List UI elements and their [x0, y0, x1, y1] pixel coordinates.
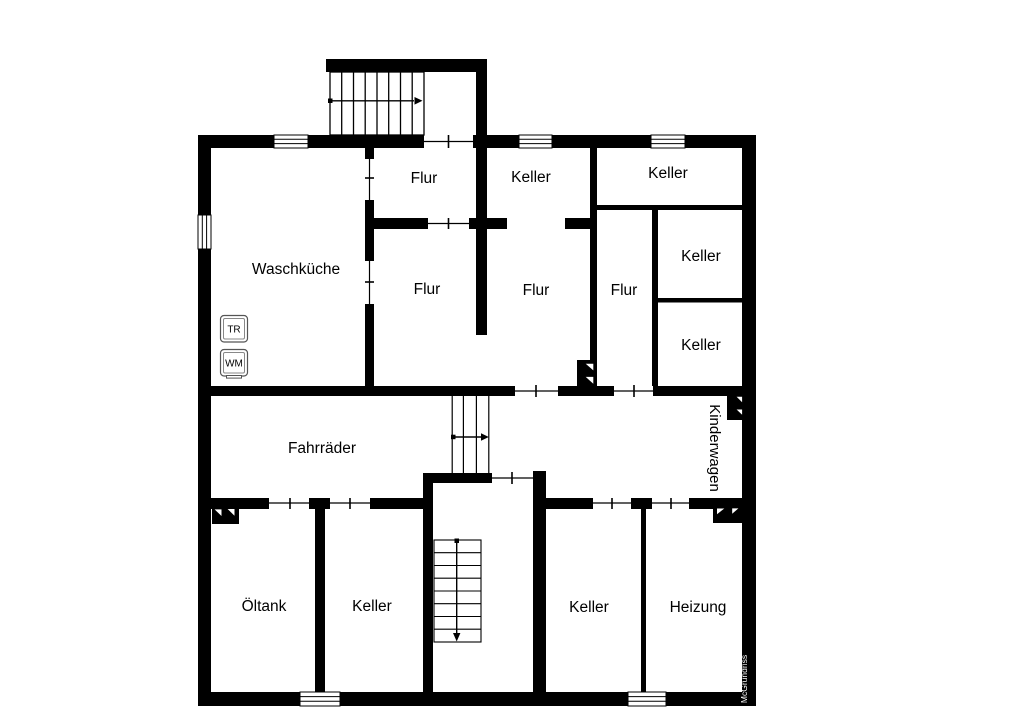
svg-text:Fahrräder: Fahrräder	[288, 440, 356, 457]
svg-text:Flur: Flur	[414, 281, 441, 298]
svg-text:Flur: Flur	[611, 282, 638, 299]
svg-text:Keller: Keller	[569, 599, 609, 616]
svg-text:Keller: Keller	[352, 598, 392, 615]
svg-text:McGrundriss: McGrundriss	[739, 655, 749, 703]
svg-text:Waschküche: Waschküche	[252, 261, 340, 278]
svg-text:Kinderwagen: Kinderwagen	[706, 404, 723, 492]
svg-text:Keller: Keller	[681, 248, 721, 265]
svg-text:Flur: Flur	[411, 170, 438, 187]
svg-text:Keller: Keller	[648, 165, 688, 182]
svg-text:Keller: Keller	[681, 337, 721, 354]
svg-text:WM: WM	[225, 359, 243, 370]
svg-text:Keller: Keller	[511, 169, 551, 186]
svg-text:Öltank: Öltank	[242, 597, 287, 615]
svg-text:Flur: Flur	[523, 282, 550, 299]
svg-text:Heizung: Heizung	[670, 599, 727, 616]
svg-text:TR: TR	[227, 325, 240, 336]
